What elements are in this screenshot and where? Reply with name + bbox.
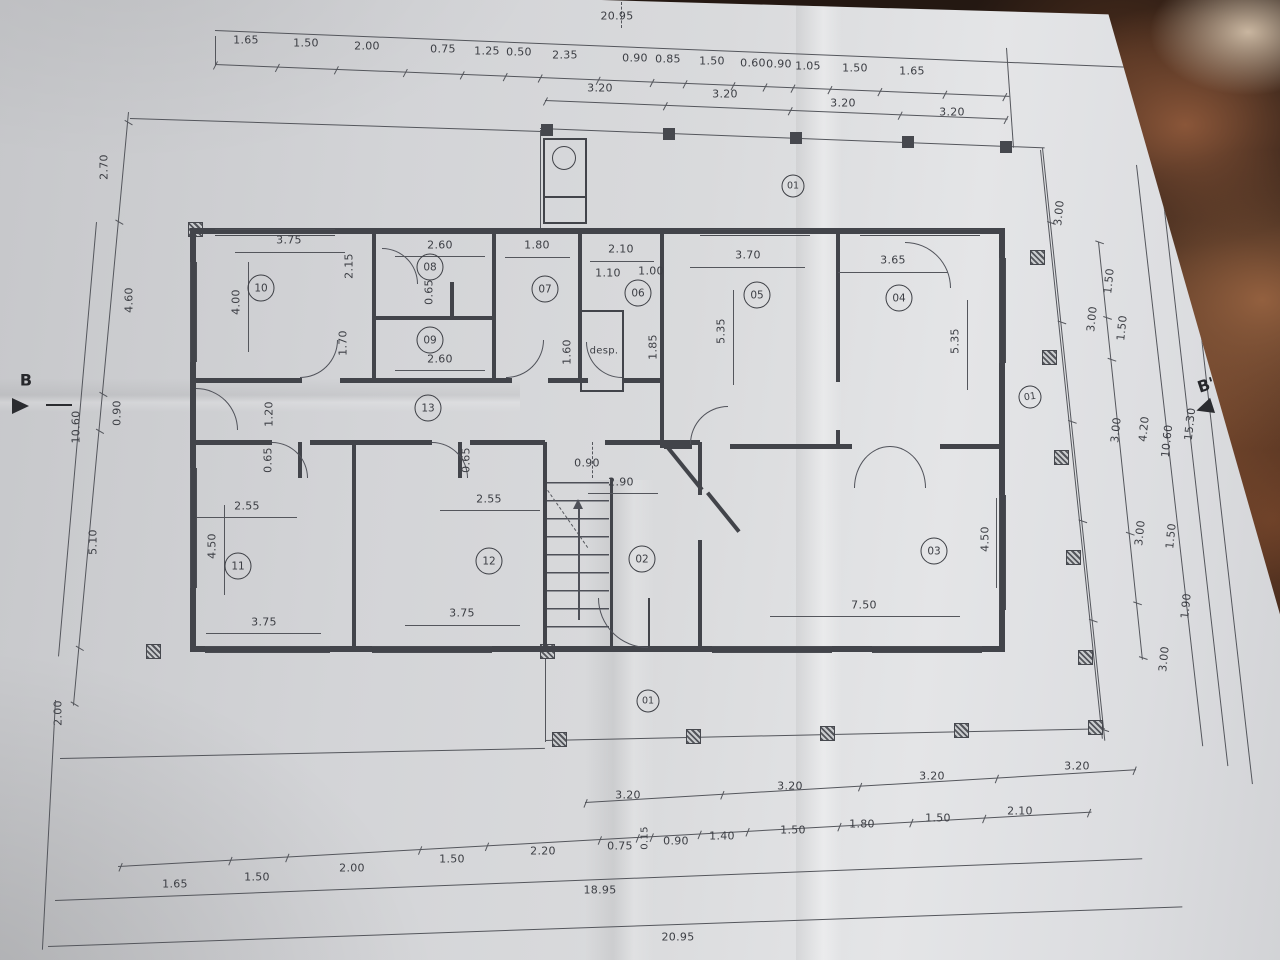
- window: [712, 646, 832, 653]
- door-arc: [272, 442, 308, 478]
- dim-label: 3.20: [830, 97, 856, 110]
- dimension-line: [235, 252, 345, 253]
- room-number: 10: [248, 275, 275, 302]
- dim-label: 0.90: [111, 400, 124, 426]
- dimension-tick: [1095, 240, 1104, 244]
- dim-label: 4.50: [979, 526, 992, 552]
- dim-label: 4.60: [123, 287, 136, 313]
- dimension-tick: [1002, 92, 1007, 101]
- dim-label: 3.65: [880, 254, 906, 267]
- room-number: 11: [225, 553, 252, 580]
- door-arc: [506, 340, 544, 378]
- dimension-tick: [720, 790, 725, 799]
- door-arc: [890, 446, 926, 488]
- dimension-tick: [663, 102, 668, 111]
- room-number: 01: [782, 175, 805, 198]
- dimension-line: [588, 493, 658, 494]
- wall-stub: [450, 282, 454, 320]
- column-hatched: [954, 723, 969, 738]
- dim-label: 3.70: [735, 249, 761, 262]
- dimension-tick: [1132, 766, 1137, 775]
- porch-edge: [1040, 150, 1103, 739]
- wall-hall-north: [730, 444, 852, 449]
- dim-label: 3.00: [1132, 520, 1148, 547]
- dim-label: 2.70: [98, 154, 111, 180]
- column: [663, 128, 675, 140]
- dimension-tick: [598, 836, 603, 845]
- dimension-tick: [75, 646, 83, 652]
- dimension-line: [206, 633, 321, 634]
- dim-label: 1.50: [1101, 268, 1117, 295]
- dimension-tick: [858, 782, 863, 791]
- dimension-tick: [898, 111, 903, 120]
- dim-label: 1.80: [524, 239, 550, 252]
- window: [872, 646, 982, 653]
- dimension-tick: [70, 701, 78, 707]
- dimension-tick: [1004, 115, 1009, 124]
- column-hatched: [1088, 720, 1103, 735]
- dim-label: 0.90: [663, 835, 689, 848]
- section-arrow-b-prime: [1194, 398, 1215, 418]
- section-arrow-b: [12, 398, 29, 414]
- door-leaf: [648, 598, 650, 648]
- dimension-tick: [909, 818, 914, 827]
- dimension-tick: [543, 97, 548, 106]
- dim-label: 2.55: [234, 500, 260, 513]
- dimension-tick: [788, 107, 793, 116]
- dimension-tick: [503, 72, 508, 81]
- column-hatched: [1054, 450, 1069, 465]
- dim-label: 2.60: [427, 353, 453, 366]
- dim-label: 3.20: [777, 780, 803, 793]
- dim-label: 3.00: [1051, 200, 1067, 227]
- paper-sheet: 20.95 1.65 1.50 2.00 0.75 1.25 0.50 2.35…: [0, 0, 1280, 960]
- photo-scene: 20.95 1.65 1.50 2.00 0.75 1.25 0.50 2.35…: [0, 0, 1280, 960]
- dimension-tick: [99, 392, 107, 398]
- window: [372, 646, 492, 653]
- dim-label: 0.15: [640, 826, 651, 849]
- window: [860, 229, 980, 236]
- dim-label: 4.00: [230, 289, 243, 315]
- window: [190, 468, 197, 588]
- dimension-tick: [1103, 316, 1112, 320]
- dim-label: 3.20: [587, 82, 613, 95]
- column-hatched: [1042, 350, 1057, 365]
- dim-label: 1.50: [293, 37, 319, 50]
- column-hatched: [1078, 650, 1093, 665]
- dim-label: 3.00: [1108, 417, 1124, 444]
- dim-label: 1.50: [699, 55, 725, 68]
- wall-hall-north: [940, 444, 1004, 449]
- dim-label: 1.50: [925, 812, 951, 825]
- paper-crease: [796, 0, 842, 960]
- wall-corridor-north: [340, 378, 512, 383]
- room-number: 01: [637, 690, 660, 713]
- column: [790, 132, 802, 144]
- dim-label: 3.20: [712, 88, 738, 101]
- column: [1000, 141, 1012, 153]
- dimension-line: [733, 290, 734, 385]
- dimension-line: [770, 616, 960, 617]
- dimension-tick: [745, 827, 750, 836]
- room-number: 13: [415, 395, 442, 422]
- dimension-tick: [228, 856, 233, 865]
- dim-label: 2.35: [552, 49, 578, 62]
- porch-edge: [545, 652, 546, 742]
- dim-label: 7.50: [851, 599, 877, 612]
- dim-label: 15.30: [1182, 407, 1198, 441]
- door-arc: [905, 242, 951, 288]
- dim-label: 4.50: [206, 533, 219, 559]
- wall-corridor-south: [190, 440, 272, 445]
- dimension-tick: [982, 814, 987, 823]
- wall-corridor-south: [470, 440, 545, 445]
- dim-label: 1.65: [233, 34, 259, 47]
- dimension-line: [440, 510, 540, 511]
- column-hatched: [146, 644, 161, 659]
- closet-desp-label: desp.: [590, 346, 619, 357]
- dim-label: 1.70: [337, 330, 350, 356]
- dim-label: 1.50: [439, 853, 465, 866]
- dimension-line: [395, 370, 485, 371]
- column-hatched: [686, 729, 701, 744]
- dimension-line: [197, 517, 297, 518]
- dimension-tick: [650, 78, 655, 87]
- dim-label: 3.75: [449, 607, 475, 620]
- dim-label: 1.65: [899, 65, 925, 78]
- window: [999, 495, 1006, 610]
- dim-label: 1.80: [849, 818, 875, 831]
- dim-label: 0.90: [766, 58, 792, 71]
- dim-label: 3.20: [919, 770, 945, 783]
- wall-corridor-north: [190, 378, 302, 383]
- dim-label: 20.95: [601, 10, 634, 23]
- dim-label: 2.20: [530, 845, 556, 858]
- chimney-flue: [552, 146, 576, 170]
- dim-label: 1.05: [795, 60, 821, 73]
- extension-line: [42, 700, 56, 950]
- dim-label: 1.00: [638, 265, 664, 278]
- dim-label: 1.50: [780, 824, 806, 837]
- dim-label: 2.60: [427, 239, 453, 252]
- dimension-tick: [1133, 601, 1142, 605]
- dimension-line: [1042, 148, 1105, 741]
- dimension-tick: [124, 120, 132, 126]
- dim-label: 4.20: [1136, 416, 1152, 443]
- dimension-line: [130, 118, 542, 132]
- column-hatched: [1030, 250, 1045, 265]
- dim-label: 1.65: [162, 878, 188, 891]
- dimension-tick: [118, 862, 123, 871]
- room-number: 06: [625, 280, 652, 307]
- dimension-line: [690, 267, 805, 268]
- wall-interior: [836, 232, 840, 382]
- dim-label: 2.15: [343, 253, 356, 279]
- door-arc: [690, 406, 728, 444]
- dimension-line: [248, 262, 249, 352]
- dim-label: 1.50: [1163, 523, 1179, 550]
- dim-label: 0.90: [622, 52, 648, 65]
- dimension-line: [838, 272, 948, 273]
- paper-crease: [0, 378, 520, 412]
- dimension-tick: [1107, 358, 1116, 362]
- dim-label: 1.20: [263, 401, 276, 427]
- dim-label: 2.10: [1007, 805, 1033, 818]
- dim-label: 1.40: [709, 830, 735, 843]
- dimension-tick: [115, 219, 123, 225]
- dimension-line: [405, 625, 520, 626]
- dim-label: 1.50: [842, 62, 868, 75]
- room-number: 09: [417, 327, 444, 354]
- dim-label: 5.35: [715, 318, 728, 344]
- dim-label: 1.25: [474, 45, 500, 58]
- room-number: 05: [744, 282, 771, 309]
- dimension-line: [48, 906, 1182, 947]
- dimension-line: [996, 498, 997, 588]
- dim-label: 5.35: [949, 328, 962, 354]
- porch-edge: [540, 130, 541, 228]
- dim-label: 2.55: [476, 493, 502, 506]
- room-number: 01: [1017, 384, 1043, 410]
- dim-label: 3.75: [251, 616, 277, 629]
- room-number: 03: [921, 538, 948, 565]
- wall-splay: [706, 491, 741, 532]
- dim-label: 2.10: [608, 243, 634, 256]
- dimension-tick: [285, 853, 290, 862]
- dimension-tick: [942, 90, 947, 99]
- wall-interior: [372, 232, 376, 380]
- dim-label: 1.90: [1178, 593, 1194, 620]
- dim-label: 0.50: [506, 46, 532, 59]
- section-line-b: [46, 404, 72, 406]
- dimension-tick: [1087, 808, 1092, 817]
- dim-label: 0.90: [574, 457, 600, 470]
- column-hatched: [820, 726, 835, 741]
- dimension-tick: [683, 80, 688, 89]
- dimension-tick: [995, 774, 1000, 783]
- dim-label: 1.50: [244, 871, 270, 884]
- dimension-tick: [698, 830, 703, 839]
- dimension-tick: [95, 429, 103, 435]
- dimension-tick: [403, 68, 408, 77]
- dim-label: 18.95: [584, 884, 617, 897]
- dimension-tick: [485, 842, 490, 851]
- dimension-tick: [460, 71, 465, 80]
- dim-label: 3.00: [1156, 646, 1172, 673]
- door-arc: [854, 446, 890, 488]
- dimension-line: [590, 261, 654, 262]
- dimension-tick: [275, 63, 280, 72]
- dim-label: 3.00: [1084, 306, 1100, 333]
- dim-label: 0.65: [423, 279, 436, 305]
- dim-label: 2.00: [339, 862, 365, 875]
- dim-label: 3.20: [939, 106, 965, 119]
- room-number: 12: [476, 548, 503, 575]
- dim-label: 2.00: [354, 40, 380, 53]
- dim-label: 0.65: [262, 447, 275, 473]
- dim-label: 20.95: [662, 931, 695, 944]
- room-number: 02: [629, 546, 656, 573]
- dim-label: 0.60: [740, 57, 766, 70]
- door-arc: [196, 388, 238, 430]
- dimension-line: [967, 300, 968, 390]
- room-number: 07: [532, 276, 559, 303]
- dimension-line: [505, 257, 570, 258]
- dimension-line: [1098, 242, 1143, 660]
- dim-label: 1.85: [647, 334, 660, 360]
- stairs-direction-line: [578, 508, 580, 620]
- dimension-tick: [583, 799, 588, 808]
- column: [541, 124, 553, 136]
- dimension-line: [585, 769, 1136, 803]
- column-hatched: [1066, 550, 1081, 565]
- chimney-base: [543, 196, 587, 224]
- door-arc: [382, 248, 418, 284]
- room-number: 08: [417, 254, 444, 281]
- section-marker-b: B: [20, 371, 32, 390]
- door-arc: [300, 340, 338, 378]
- dimension-tick: [763, 83, 768, 92]
- window: [205, 646, 330, 653]
- dim-label: 1.60: [561, 339, 574, 365]
- stairs-arrow: [573, 499, 583, 509]
- dim-label: 5.10: [87, 529, 100, 555]
- window: [700, 229, 810, 236]
- dim-label: 10.60: [1159, 424, 1175, 458]
- dim-label: 0.85: [655, 53, 681, 66]
- dimension-tick: [827, 85, 832, 94]
- dim-label: 1.50: [1114, 315, 1130, 342]
- dim-label: 0.75: [607, 840, 633, 853]
- dimension-tick: [791, 84, 796, 93]
- window: [215, 229, 335, 236]
- dimension-line: [60, 748, 545, 759]
- wall-interior: [352, 442, 356, 648]
- column: [902, 136, 914, 148]
- dim-label: 3.20: [1064, 760, 1090, 773]
- dim-label: 1.10: [595, 267, 621, 280]
- wall-interior: [492, 232, 496, 380]
- dimension-tick: [334, 66, 339, 75]
- wall-corridor-south: [310, 440, 432, 445]
- dim-label: 0.75: [430, 43, 456, 56]
- dimension-line: [395, 256, 485, 257]
- window: [999, 258, 1006, 363]
- dimension-tick: [538, 74, 543, 83]
- dim-label: 0.65: [460, 447, 473, 473]
- extension-line: [215, 36, 216, 66]
- room-number: 04: [886, 285, 913, 312]
- dimension-tick: [837, 822, 842, 831]
- dim-label: 3.20: [615, 789, 641, 802]
- wall-interior: [698, 540, 702, 648]
- dimension-tick: [1138, 656, 1147, 660]
- dim-label: 2.90: [608, 476, 634, 489]
- wall-corridor-north: [622, 378, 664, 383]
- dimension-tick: [418, 846, 423, 855]
- wall-room08-09: [372, 316, 496, 320]
- dimension-tick: [877, 87, 882, 96]
- window: [190, 262, 197, 362]
- dim-label: 3.75: [276, 234, 302, 247]
- dimension-line: [224, 505, 225, 595]
- column-hatched: [552, 732, 567, 747]
- dim-label: 10.60: [70, 411, 83, 444]
